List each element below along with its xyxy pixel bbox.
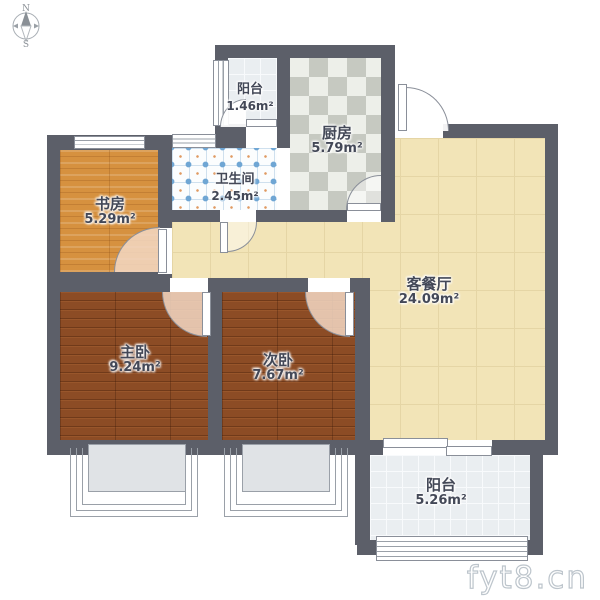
label-living-dining: 客餐厅24.09m² (369, 276, 489, 308)
label-bathroom: 卫生间2.45m² (180, 172, 290, 204)
wall-segment (381, 45, 395, 222)
door-opening-second-bedroom (308, 278, 350, 292)
balcony-sliding-door-panel (383, 438, 448, 448)
wall-segment (545, 124, 558, 455)
master-bedroom-door-leaf (202, 292, 211, 336)
door-opening-balcony-top (246, 124, 277, 148)
kitchen-door-leaf (347, 203, 381, 211)
wall-segment (530, 446, 543, 555)
label-balcony-bottom: 阳台5.26m² (391, 477, 491, 509)
door-opening-kitchen (347, 210, 381, 222)
watermark-text: fyt8.cn (467, 560, 588, 596)
window-study (74, 136, 145, 149)
compass-south-label: S (23, 40, 29, 48)
wall-segment (47, 135, 60, 455)
balcony-top-door-leaf (246, 119, 277, 127)
bathroom-door-leaf (220, 222, 228, 253)
label-kitchen: 厨房5.79m² (297, 125, 377, 157)
label-study: 书房5.29m² (66, 196, 154, 228)
label-balcony-top: 阳台1.46m² (210, 82, 290, 114)
wall-segment (443, 124, 558, 138)
label-second-bedroom: 次卧7.67m² (228, 352, 328, 384)
window-balcony-bottom (376, 536, 528, 561)
window-bathroom (172, 134, 216, 148)
second-bedroom-door-leaf (345, 292, 354, 336)
bay-window-second (242, 444, 330, 492)
bay-window-master (88, 444, 186, 492)
entry-door-leaf (398, 84, 407, 131)
balcony-sliding-door-panel (446, 446, 492, 456)
compass-icon: N S (4, 2, 48, 48)
entry-door-arc (406, 87, 449, 131)
wall-segment (47, 272, 172, 292)
label-master-bedroom: 主卧9.24m² (85, 344, 185, 376)
door-opening-bathroom (220, 210, 256, 222)
wall-segment (215, 45, 395, 58)
floor-plan-page: { "compass": {"north_label": "N", "south… (0, 0, 600, 600)
study-door-leaf (158, 229, 167, 273)
wall-segment (355, 278, 370, 545)
door-opening-master-bedroom (170, 278, 208, 292)
